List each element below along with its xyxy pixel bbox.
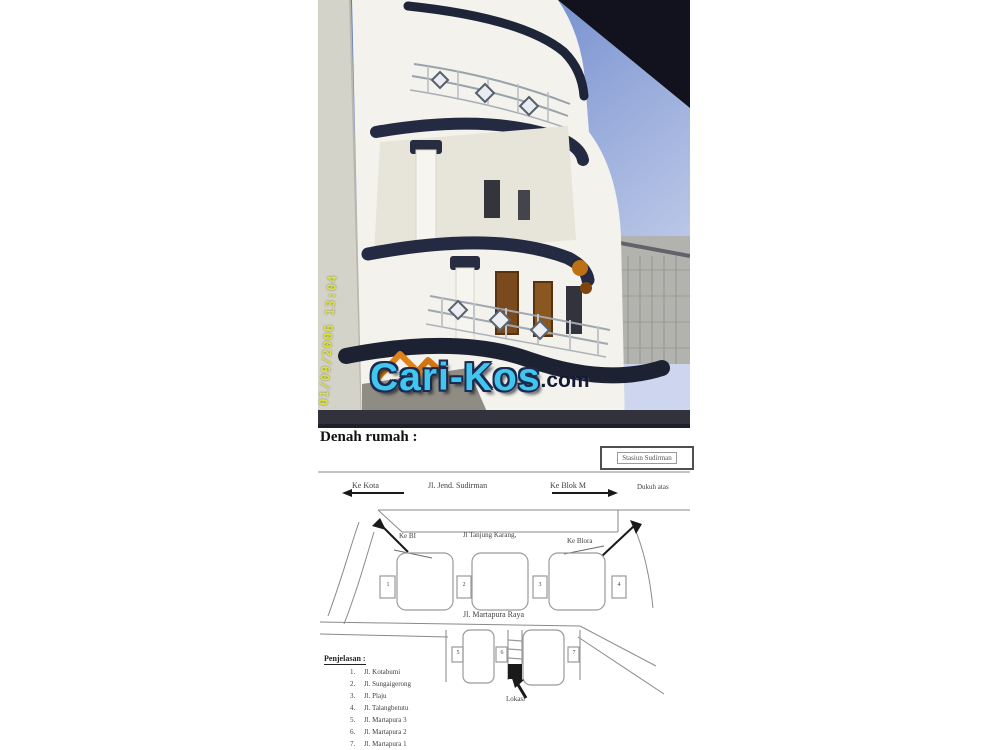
ke-kota-arrow-icon xyxy=(342,489,404,497)
legend-title: Penjelasan : xyxy=(324,654,366,665)
ke-blok-m-arrow-icon xyxy=(552,489,618,497)
legend-item: 6.Jl. Martapura 2 xyxy=(350,728,407,736)
road-label-tanjung-karang: Jl Tanjung Karang, xyxy=(463,531,516,539)
plan-heading: Denah rumah : xyxy=(320,429,418,446)
street-marker-3: 3 xyxy=(535,582,545,588)
listing-image: 01/09/2006 13:04 Cari-Kos.com Denah ruma… xyxy=(0,0,1000,750)
legend-item: 3.Jl. Plaju xyxy=(350,692,387,700)
road-label-ke-kota: Ke Kota xyxy=(352,481,379,490)
watermark-logo: Cari-Kos.com xyxy=(370,346,670,416)
logo-brand-text: Cari-Kos xyxy=(370,356,541,399)
logo-domain-suffix: .com xyxy=(541,369,590,393)
station-label: Stasiun Sudirman xyxy=(617,452,677,464)
legend-item: 5.Jl. Martapura 3 xyxy=(350,716,407,724)
street-marker-4: 4 xyxy=(614,582,624,588)
road-label-ke-blora: Ke Blora xyxy=(567,537,592,545)
house-photo: 01/09/2006 13:04 Cari-Kos.com xyxy=(318,0,690,428)
street-marker-6: 6 xyxy=(497,650,507,656)
road-label-ke-blok-m: Ke Blok M xyxy=(550,481,586,490)
station-box: Stasiun Sudirman xyxy=(600,446,694,470)
legend-item: 4.Jl. Talangbetutu xyxy=(350,704,409,712)
middle-floor xyxy=(374,124,583,254)
street-marker-2: 2 xyxy=(459,582,469,588)
area-label-dukuh-atas: Dukuh atas xyxy=(637,483,669,491)
legend-item: 2.Jl. Sungaigerong xyxy=(350,680,411,688)
upper-blocks xyxy=(380,553,626,610)
street-marker-1: 1 xyxy=(383,582,393,588)
lokasi-label: Lokasi xyxy=(506,695,525,703)
road-label-martapura-raya: Jl. Martapura Raya xyxy=(463,610,524,619)
legend-item: 7.Jl. Martapura 1 xyxy=(350,740,407,748)
road-label-sudirman: Jl. Jend. Sudirman xyxy=(428,481,487,490)
street-marker-5: 5 xyxy=(453,650,463,656)
road-label-ke-bi: Ke BI xyxy=(399,532,416,540)
street-marker-7: 7 xyxy=(569,650,579,656)
legend-item: 1.Jl. Kotabumi xyxy=(350,668,400,676)
